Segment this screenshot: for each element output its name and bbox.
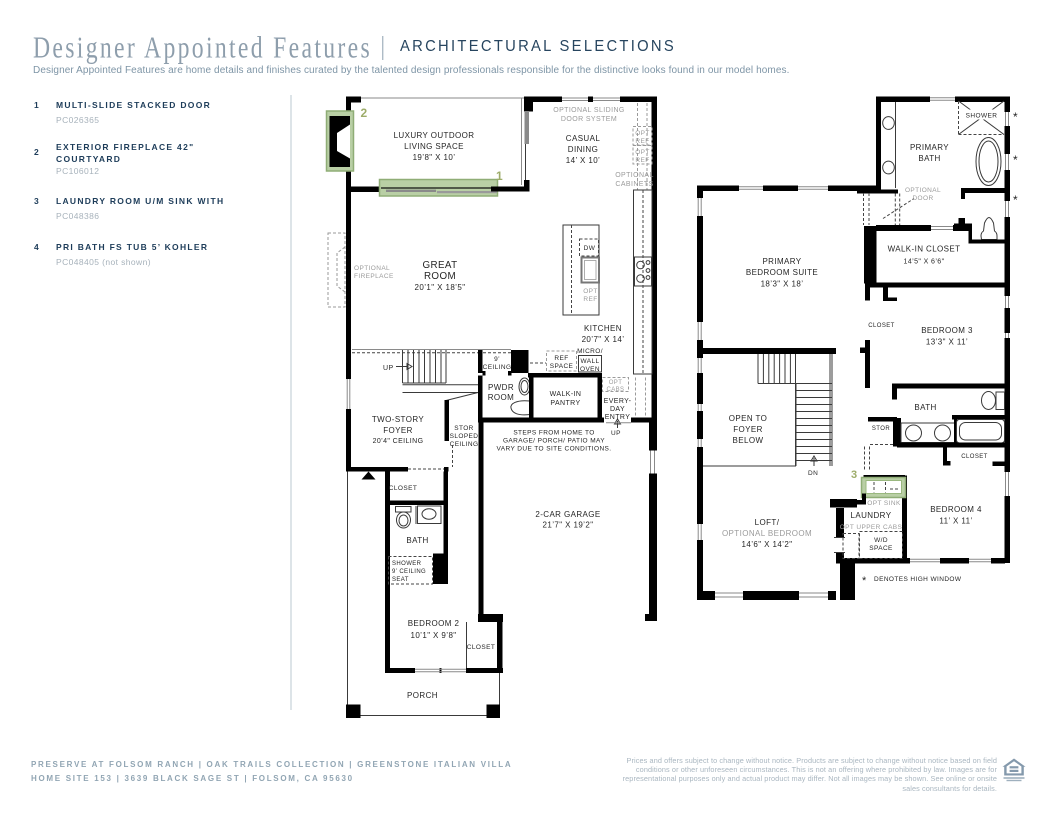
svg-text:SEAT: SEAT (392, 577, 409, 583)
svg-text:SPACE: SPACE (869, 545, 893, 552)
svg-text:GARAGE/ PORCH/ PATIO MAY: GARAGE/ PORCH/ PATIO MAY (503, 438, 605, 445)
svg-text:VARY DUE TO SITE CONDITIONS.: VARY DUE TO SITE CONDITIONS. (497, 446, 612, 453)
svg-text:2: 2 (361, 106, 368, 120)
svg-text:OVEN: OVEN (580, 366, 600, 373)
svg-text:DOOR: DOOR (912, 195, 933, 202)
svg-text:DINING: DINING (568, 145, 598, 154)
svg-text:FOYER: FOYER (383, 426, 413, 435)
svg-text:OPTIONAL BEDROOM: OPTIONAL BEDROOM (722, 529, 812, 538)
svg-text:9’ CEILING: 9’ CEILING (392, 569, 426, 575)
svg-text:UP: UP (383, 365, 394, 372)
svg-text:BELOW: BELOW (733, 436, 764, 445)
svg-text:20’7" X 14’: 20’7" X 14’ (582, 335, 625, 344)
svg-text:FOYER: FOYER (733, 425, 763, 434)
svg-text:10’1" X 9’8": 10’1" X 9’8" (410, 631, 456, 640)
svg-text:LIVING SPACE: LIVING SPACE (404, 142, 464, 151)
svg-text:9’: 9’ (494, 356, 500, 363)
svg-text:DN: DN (808, 470, 818, 477)
svg-text:OPEN TO: OPEN TO (729, 414, 768, 423)
svg-text:SHOWER: SHOWER (966, 113, 998, 120)
svg-text:DAY: DAY (610, 406, 625, 413)
svg-text:LAUNDRY: LAUNDRY (851, 511, 892, 520)
svg-text:WALL: WALL (580, 358, 599, 365)
svg-text:W/D: W/D (874, 537, 888, 544)
svg-text:CLOSET: CLOSET (961, 454, 987, 460)
svg-text:DENOTES HIGH WINDOW: DENOTES HIGH WINDOW (874, 576, 962, 583)
svg-text:LOFT/: LOFT/ (755, 518, 780, 527)
svg-text:BEDROOM 4: BEDROOM 4 (930, 505, 982, 514)
svg-text:11’ X 11’: 11’ X 11’ (939, 517, 972, 526)
svg-text:20’1" X 18’5": 20’1" X 18’5" (415, 283, 466, 292)
svg-text:UP: UP (611, 430, 621, 437)
svg-text:*: * (862, 575, 867, 587)
svg-text:SPACE: SPACE (550, 363, 574, 370)
svg-text:OPT: OPT (583, 288, 598, 295)
svg-text:OPTIONAL SLIDING: OPTIONAL SLIDING (553, 107, 625, 114)
svg-text:FIREPLACE: FIREPLACE (354, 273, 394, 280)
svg-text:OPT: OPT (609, 380, 623, 386)
svg-text:SHOWER: SHOWER (392, 561, 422, 567)
svg-text:OPTIONAL: OPTIONAL (354, 265, 390, 272)
svg-text:BEDROOM 2: BEDROOM 2 (408, 619, 460, 628)
svg-text:DOOR SYSTEM: DOOR SYSTEM (561, 116, 617, 123)
svg-text:CLOSET: CLOSET (467, 644, 495, 651)
svg-text:18’3" X 18’: 18’3" X 18’ (761, 280, 804, 289)
svg-text:14’ X 10’: 14’ X 10’ (566, 156, 600, 165)
svg-text:PORCH: PORCH (407, 691, 438, 700)
svg-text:OPT SINK: OPT SINK (867, 500, 901, 507)
svg-text:WALK-IN CLOSET: WALK-IN CLOSET (888, 245, 961, 254)
svg-text:*: * (1013, 110, 1018, 124)
svg-text:CABINETS: CABINETS (615, 181, 653, 188)
svg-text:19’8" X 10’: 19’8" X 10’ (413, 153, 456, 162)
svg-text:OPTIONAL: OPTIONAL (905, 187, 941, 194)
svg-text:*: * (1013, 193, 1018, 207)
svg-text:14’6" X 14’2": 14’6" X 14’2" (742, 540, 793, 549)
svg-text:CLOSET: CLOSET (868, 323, 894, 329)
svg-text:20’4" CEILING: 20’4" CEILING (373, 438, 424, 445)
svg-text:STOR: STOR (872, 426, 890, 432)
svg-text:PWDR: PWDR (488, 383, 514, 392)
svg-text:BEDROOM SUITE: BEDROOM SUITE (746, 268, 818, 277)
svg-text:1: 1 (496, 169, 503, 183)
svg-text:MICRO/: MICRO/ (577, 348, 603, 355)
svg-text:BATH: BATH (918, 154, 940, 163)
svg-text:LUXURY OUTDOOR: LUXURY OUTDOOR (394, 131, 475, 140)
svg-text:CLOSET: CLOSET (389, 485, 417, 492)
svg-text:STOR: STOR (454, 425, 474, 432)
svg-text:CEILING: CEILING (450, 441, 479, 448)
svg-text:13’3" X 11’: 13’3" X 11’ (926, 338, 968, 347)
svg-text:CABS: CABS (607, 387, 625, 393)
svg-text:DW: DW (584, 245, 596, 252)
svg-text:REF: REF (583, 296, 597, 303)
svg-text:3: 3 (851, 469, 858, 481)
svg-text:BEDROOM 3: BEDROOM 3 (921, 326, 973, 335)
svg-text:PRIMARY: PRIMARY (762, 257, 801, 266)
svg-text:BATH: BATH (406, 536, 428, 545)
svg-text:KITCHEN: KITCHEN (584, 324, 622, 333)
svg-text:14’5" X 6’6": 14’5" X 6’6" (904, 259, 945, 266)
svg-text:EVERY-: EVERY- (604, 398, 632, 405)
svg-text:STEPS FROM HOME TO: STEPS FROM HOME TO (513, 430, 594, 437)
svg-text:SLOPED: SLOPED (450, 433, 479, 440)
svg-text:PANTRY: PANTRY (550, 400, 580, 407)
svg-text:CASUAL: CASUAL (566, 134, 601, 143)
svg-text:ROOM: ROOM (488, 393, 515, 402)
svg-text:CEILING: CEILING (483, 364, 512, 371)
svg-text:PRIMARY: PRIMARY (910, 143, 949, 152)
svg-text:GREAT: GREAT (422, 260, 457, 271)
svg-text:REF: REF (554, 355, 568, 362)
svg-text:OPT UPPER CABS: OPT UPPER CABS (840, 524, 903, 531)
svg-text:WALK-IN: WALK-IN (550, 391, 582, 398)
svg-text:*: * (1013, 153, 1018, 167)
svg-text:OPTIONAL: OPTIONAL (615, 172, 654, 179)
svg-text:BATH: BATH (914, 403, 936, 412)
svg-text:2-CAR GARAGE: 2-CAR GARAGE (535, 510, 600, 519)
svg-text:21’7" X 19’2": 21’7" X 19’2" (543, 521, 594, 530)
svg-text:TWO-STORY: TWO-STORY (372, 415, 424, 424)
svg-text:ROOM: ROOM (424, 271, 456, 282)
